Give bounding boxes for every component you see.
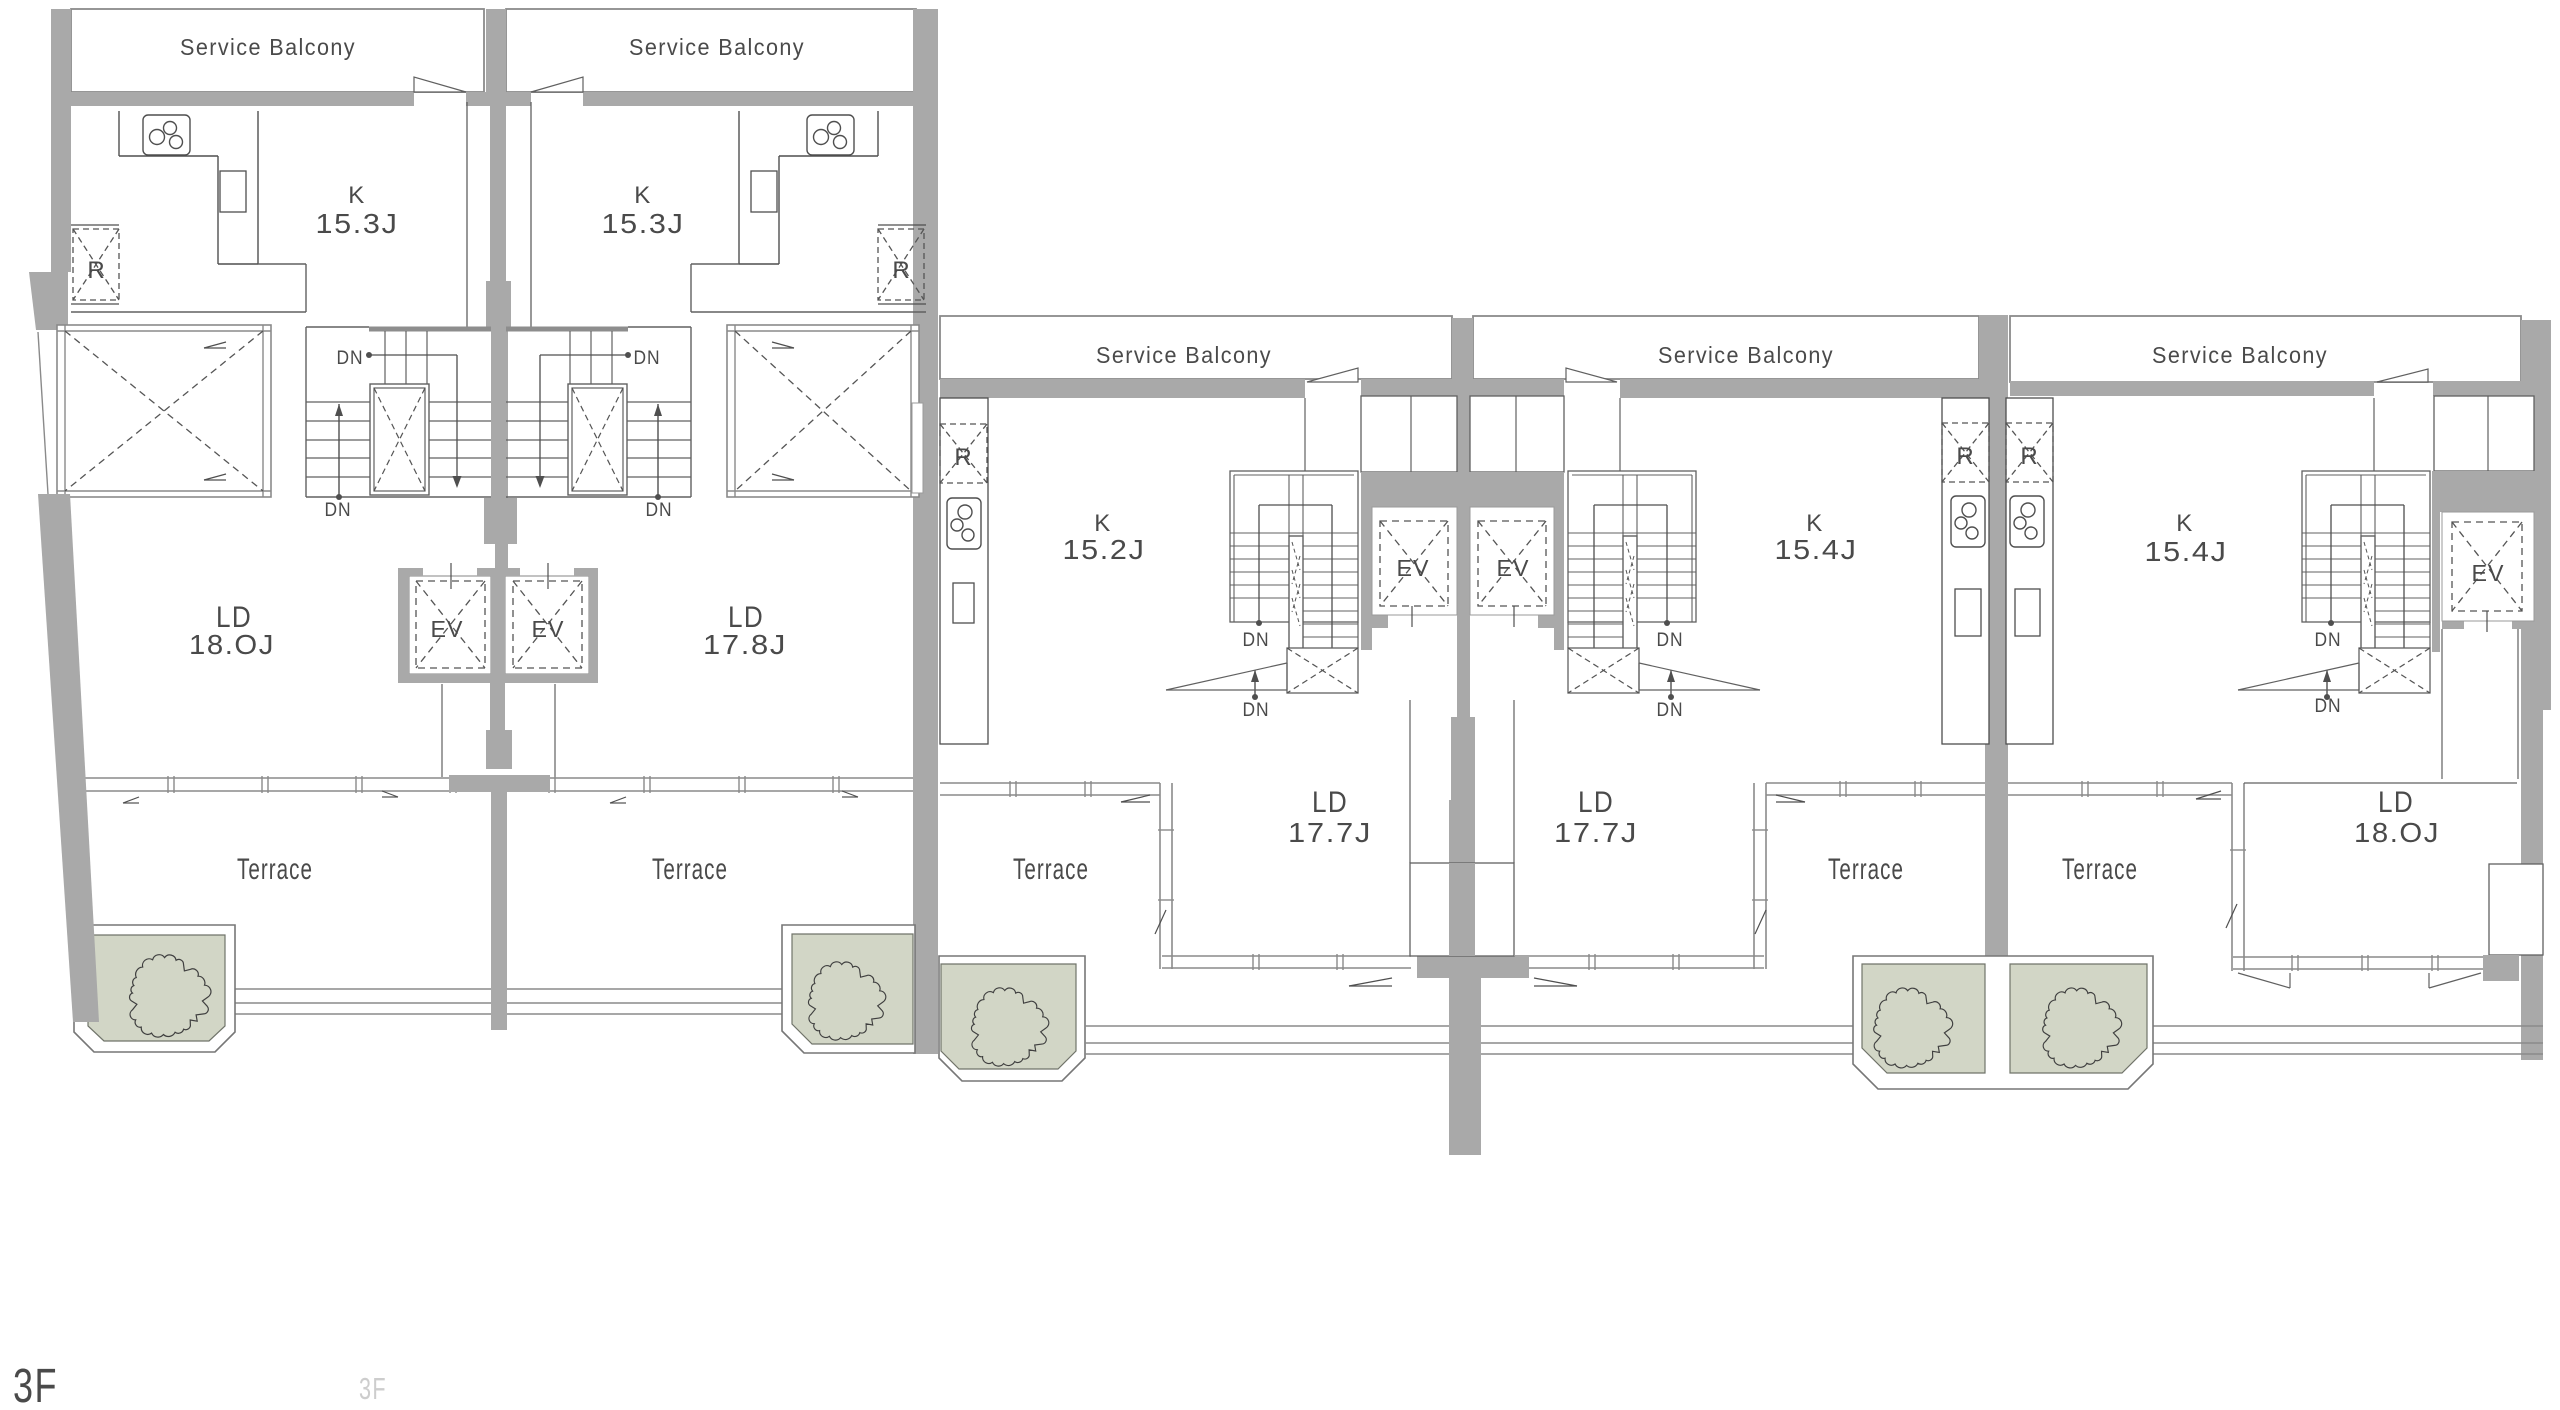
svg-text:R: R <box>87 257 104 284</box>
svg-text:DN: DN <box>2315 696 2342 717</box>
svg-text:Service Balcony: Service Balcony <box>2152 342 2328 368</box>
svg-text:Terrace: Terrace <box>1013 853 1089 886</box>
svg-text:Terrace: Terrace <box>237 853 313 886</box>
svg-text:R: R <box>2020 443 2037 470</box>
svg-text:DN: DN <box>634 348 661 369</box>
svg-text:EV: EV <box>532 616 565 642</box>
svg-text:DN: DN <box>1657 630 1684 651</box>
svg-text:K: K <box>1806 510 1824 537</box>
svg-text:LD: LD <box>1312 786 1348 819</box>
svg-text:15.4J: 15.4J <box>1775 534 1858 565</box>
svg-text:EV: EV <box>1397 555 1430 581</box>
svg-text:DN: DN <box>1243 700 1270 721</box>
svg-text:Service Balcony: Service Balcony <box>180 34 356 60</box>
svg-text:Terrace: Terrace <box>2062 853 2138 886</box>
svg-text:3F: 3F <box>13 1360 58 1410</box>
svg-text:R: R <box>1956 443 1973 470</box>
svg-text:DN: DN <box>646 500 673 521</box>
svg-text:18.OJ: 18.OJ <box>2354 817 2440 848</box>
svg-text:17.7J: 17.7J <box>1554 817 1638 848</box>
svg-text:17.8J: 17.8J <box>703 629 787 660</box>
svg-text:Service Balcony: Service Balcony <box>1096 342 1272 368</box>
svg-text:18.OJ: 18.OJ <box>189 629 275 660</box>
svg-text:15.3J: 15.3J <box>316 208 399 239</box>
svg-text:DN: DN <box>1243 630 1270 651</box>
svg-text:Terrace: Terrace <box>652 853 728 886</box>
svg-text:17.7J: 17.7J <box>1288 817 1372 848</box>
svg-text:DN: DN <box>325 500 352 521</box>
svg-text:Service Balcony: Service Balcony <box>629 34 805 60</box>
svg-text:15.3J: 15.3J <box>602 208 685 239</box>
svg-text:LD: LD <box>2378 786 2414 819</box>
svg-text:K: K <box>634 182 652 209</box>
svg-text:15.4J: 15.4J <box>2145 536 2228 567</box>
svg-text:Terrace: Terrace <box>1828 853 1904 886</box>
svg-text:DN: DN <box>337 348 364 369</box>
svg-text:LD: LD <box>1578 786 1614 819</box>
svg-text:R: R <box>892 257 909 284</box>
svg-text:Service Balcony: Service Balcony <box>1658 342 1834 368</box>
svg-text:K: K <box>348 182 366 209</box>
svg-text:K: K <box>2176 510 2194 537</box>
svg-text:DN: DN <box>1657 700 1684 721</box>
svg-text:EV: EV <box>431 616 464 642</box>
svg-text:EV: EV <box>2472 560 2505 586</box>
svg-text:15.2J: 15.2J <box>1063 534 1146 565</box>
svg-text:3F: 3F <box>359 1371 387 1406</box>
svg-text:R: R <box>954 444 971 471</box>
svg-text:EV: EV <box>1497 555 1530 581</box>
svg-text:K: K <box>1094 510 1112 537</box>
svg-text:DN: DN <box>2315 630 2342 651</box>
